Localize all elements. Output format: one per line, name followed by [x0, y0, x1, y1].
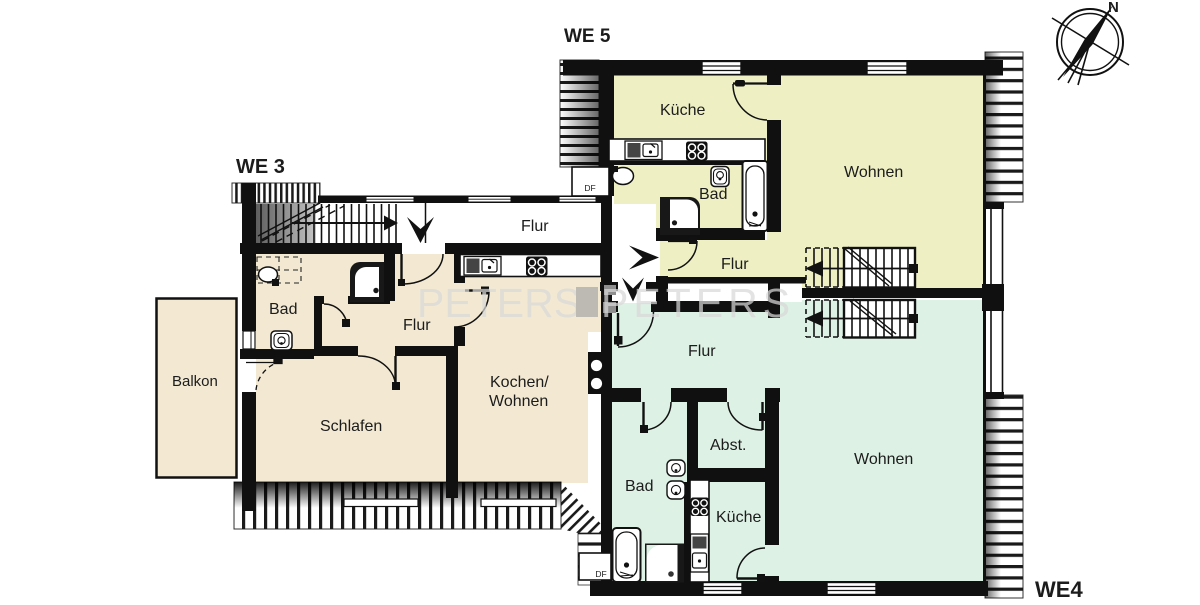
svg-text:Wohnen: Wohnen	[854, 451, 913, 468]
svg-text:Abst.: Abst.	[710, 437, 746, 454]
svg-text:Schlafen: Schlafen	[320, 418, 382, 435]
svg-text:Flur: Flur	[521, 218, 549, 235]
svg-text:DF: DF	[595, 569, 606, 579]
svg-text:PETERS: PETERS	[417, 280, 581, 326]
svg-text:DF: DF	[584, 183, 595, 193]
svg-text:WE 5: WE 5	[564, 26, 611, 47]
svg-text:Kochen/: Kochen/	[490, 374, 549, 391]
svg-text:Wohnen: Wohnen	[489, 393, 548, 410]
svg-text:WE 3: WE 3	[236, 156, 285, 178]
svg-text:Flur: Flur	[721, 256, 749, 273]
svg-text:Bad: Bad	[269, 301, 297, 318]
svg-text:Bad: Bad	[699, 186, 727, 203]
svg-text:Balkon: Balkon	[172, 373, 218, 390]
svg-text:Küche: Küche	[716, 509, 761, 526]
svg-text:N: N	[1108, 0, 1119, 16]
svg-text:Flur: Flur	[688, 343, 716, 360]
svg-text:PETERS: PETERS	[601, 280, 795, 326]
svg-text:WE4: WE4	[1035, 577, 1083, 600]
svg-text:Wohnen: Wohnen	[844, 164, 903, 181]
svg-text:Bad: Bad	[625, 478, 653, 495]
svg-text:Küche: Küche	[660, 102, 705, 119]
